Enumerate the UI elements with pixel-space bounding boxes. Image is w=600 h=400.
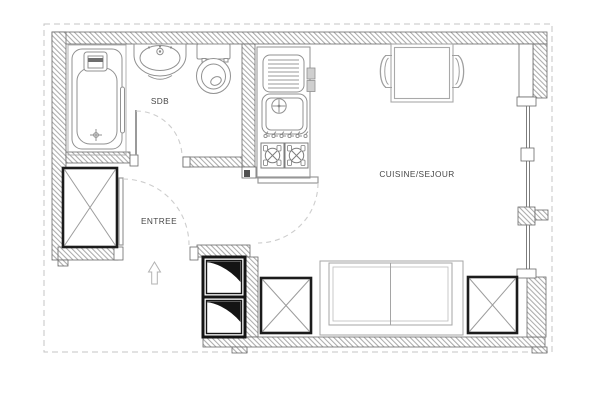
wall-step-left-low [58, 260, 68, 266]
wall-closet-bottom [58, 247, 118, 260]
window-cap-bottom [517, 269, 536, 278]
wall-sdb-bottom-left [66, 152, 130, 163]
wall-entry-right [197, 245, 250, 257]
wall-step-bottom-left [232, 347, 247, 353]
stove-knobs [264, 132, 308, 138]
wall-sdb-bottom-right [183, 157, 242, 167]
room-label-cuisine-sejour: CUISINE/SEJOUR [379, 169, 454, 179]
bathroom-fixtures [68, 44, 231, 155]
duct-shafts [203, 257, 245, 337]
entrance-arrow-icon [149, 262, 161, 284]
faucet-block [307, 81, 315, 92]
kitchen-door-swing [258, 183, 318, 243]
window-jamb [519, 44, 533, 97]
kitchen-sink-icon [262, 94, 307, 134]
chair-icon [452, 56, 464, 88]
floor-plan-canvas: SDB ENTREE CUISINE/SEJOUR [0, 0, 600, 400]
window-mullion [521, 148, 534, 161]
entrance-area [63, 168, 161, 284]
wall-bottom [203, 337, 545, 347]
entrance-door-swing [123, 179, 189, 245]
chair-icon [380, 56, 392, 88]
entrance-jamb-right [190, 247, 198, 260]
sdb-door-jamb-left [130, 155, 138, 166]
window-cap-top [517, 97, 536, 106]
washbasin-icon [134, 44, 186, 79]
drainer-icon [263, 55, 304, 92]
room-label-entree: ENTREE [141, 216, 177, 226]
sofa-icon [320, 261, 463, 335]
toilet-icon [197, 44, 231, 94]
gas-stove-icon [261, 143, 308, 168]
wall-kitchen-partition [242, 44, 255, 167]
door-hinge-block [244, 170, 250, 177]
floor-plan: SDB ENTREE CUISINE/SEJOUR [0, 0, 600, 400]
wall-right-bottom-corner [527, 277, 546, 337]
entrance-door-leaf [119, 178, 123, 245]
grab-bar [121, 87, 125, 133]
window [517, 44, 536, 278]
room-label-sdb: SDB [151, 96, 169, 106]
entrance-jamb-left [114, 247, 123, 260]
kitchen-unit [257, 47, 315, 178]
faucet-block [307, 68, 315, 79]
wall-step-bottom-right [532, 347, 547, 353]
wall-window-pier-nub [535, 210, 548, 220]
sdb-door-jamb-right [183, 157, 190, 167]
wall-right-top-corner [533, 44, 547, 98]
wall-window-pier [518, 207, 535, 225]
bathtub-icon [72, 49, 125, 149]
dining-set [380, 44, 463, 102]
sdb-door-swing [136, 111, 182, 157]
dining-table [391, 44, 453, 102]
wall-top [52, 32, 547, 44]
wall-duct-right [245, 257, 258, 337]
living-furniture [261, 261, 517, 335]
